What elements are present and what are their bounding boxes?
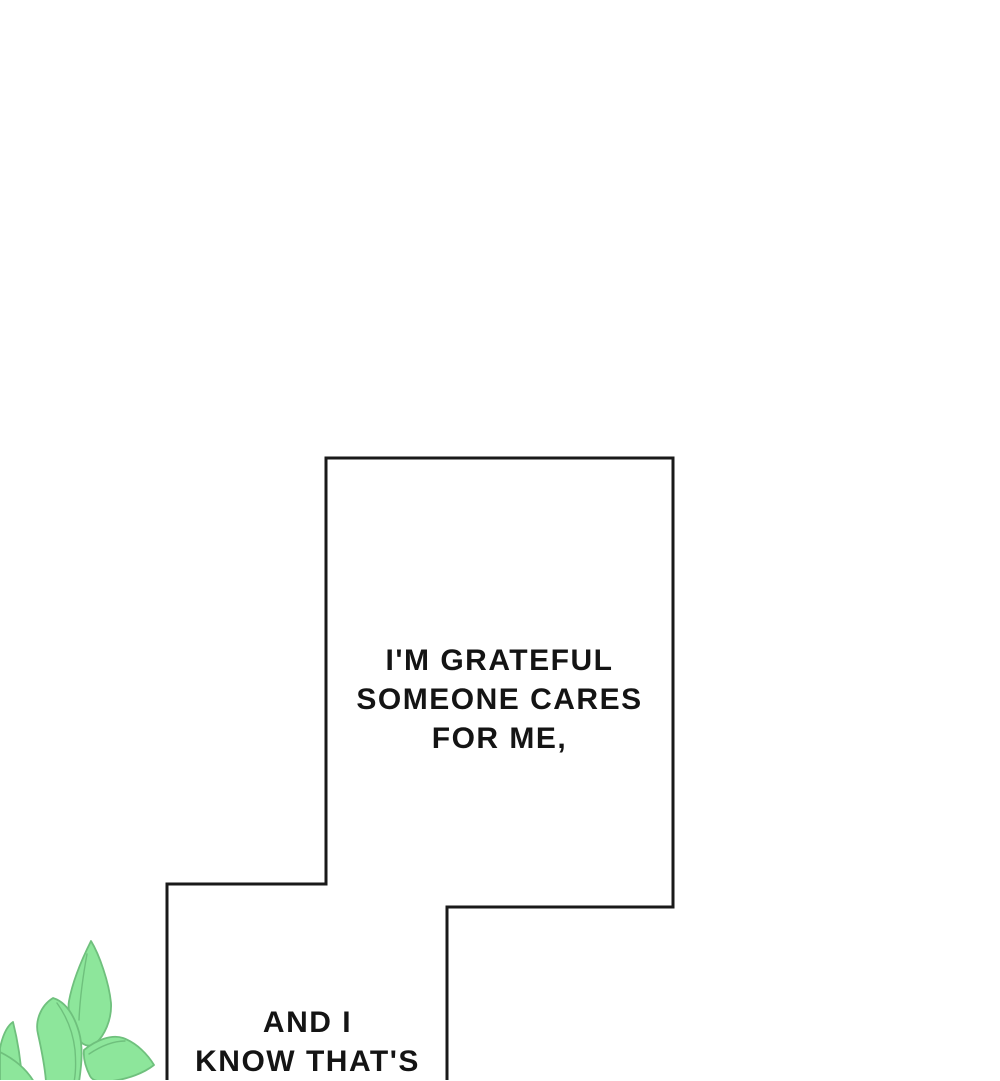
dialogue-line: KNOW THAT'S (167, 1042, 448, 1081)
dialogue-line: AND I (167, 1003, 448, 1042)
comic-panel: I'M GRATEFUL SOMEONE CARES FOR ME, AND I… (0, 0, 1000, 1080)
dialogue-line: SOMEONE CARES (326, 680, 673, 719)
dialogue-line: I'M GRATEFUL (326, 641, 673, 680)
comic-page: { "panel": { "background_color": "#fffff… (0, 0, 1000, 1080)
speech-bubbles-outline (0, 0, 1000, 1080)
speech-bubble-text-grateful: I'M GRATEFUL SOMEONE CARES FOR ME, (326, 641, 673, 758)
dialogue-line: FOR ME, (326, 719, 673, 758)
speech-bubble-shape (167, 458, 673, 1080)
speech-bubble-text-know: AND I KNOW THAT'S (167, 1003, 448, 1081)
